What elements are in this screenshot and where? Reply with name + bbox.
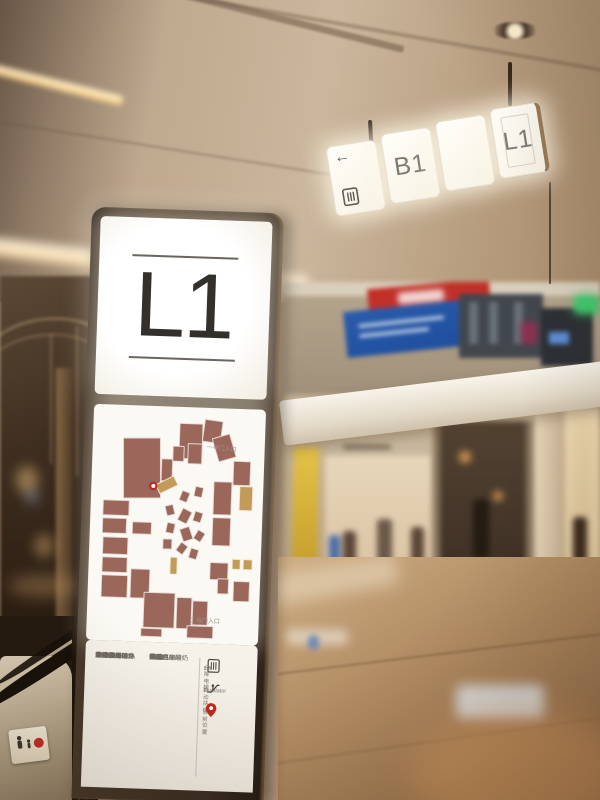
map-unit-block	[102, 556, 128, 573]
store-name: VERO MODA	[95, 652, 135, 661]
sign-panel-direction: ←	[325, 139, 386, 217]
railing-curve	[0, 327, 98, 422]
map-unit-block	[188, 547, 200, 561]
map-unit-block	[242, 559, 252, 571]
map-unit-block	[233, 461, 251, 486]
gate-label-bottom: 二号门入口	[190, 615, 220, 625]
railing-post	[76, 326, 78, 476]
floor-reflection	[278, 557, 400, 606]
storefront-window	[541, 308, 593, 366]
map-unit-block	[179, 526, 194, 542]
green-neon-sign	[575, 296, 598, 313]
map-unit-block	[216, 578, 229, 594]
escalator-safety-sticker	[8, 726, 50, 764]
map-unit-block	[102, 500, 129, 517]
yellow-banner	[292, 447, 319, 565]
map-unit-block	[164, 503, 176, 516]
legend-item-location: 当前位置	[202, 703, 249, 719]
floor-reflection	[308, 635, 319, 650]
map-unit-block	[162, 538, 172, 550]
map-unit-block	[213, 481, 233, 516]
map-unit-block	[193, 486, 205, 499]
map-unit-block	[192, 511, 204, 525]
map-unit-block	[186, 625, 213, 640]
map-unit-block	[177, 507, 193, 524]
light-blob	[8, 576, 78, 596]
legend-item-escalator: Escalator 自动扶梯	[203, 682, 250, 696]
sign-panel-b1: B1	[380, 126, 441, 204]
map-unit-block	[131, 521, 152, 535]
legend-item-lift: Lift 升降电梯	[204, 658, 251, 675]
map-unit-block	[102, 536, 128, 555]
map-unit-block	[101, 518, 127, 535]
warm-lamp	[493, 491, 503, 501]
map-unit-block	[178, 490, 191, 504]
escalator-icon	[206, 682, 220, 694]
floor-warm-glow	[410, 710, 600, 800]
ceiling-light-strip	[0, 64, 124, 106]
map-unit-block	[212, 517, 232, 547]
map-unit-block	[172, 445, 185, 461]
shopper-silhouette	[473, 499, 489, 559]
directory-column-1: L101太平洋咖啡L103世为国际健身L107PATAVINITYL108NOM…	[91, 652, 149, 785]
ceiling-seam	[0, 120, 378, 184]
map-unit-block	[101, 574, 129, 598]
map-unit-block	[165, 521, 177, 534]
blank-panel-label	[435, 115, 494, 191]
lift-icon	[207, 658, 221, 673]
map-legend: Lift 升降电梯 Escalator 自动扶梯	[200, 656, 252, 789]
warm-lamp	[459, 451, 471, 463]
floor-label-b1: B1	[381, 127, 440, 203]
left-arrow-icon: ←	[333, 147, 352, 167]
directory-row: L127VERO MODA	[96, 652, 150, 654]
blue-banner-sign	[343, 300, 465, 358]
sign-panel-l1: L1	[489, 101, 550, 179]
light-blob	[34, 534, 54, 558]
prohibition-sign	[32, 736, 45, 749]
store-display-blob	[521, 322, 537, 344]
map-unit-block	[231, 558, 241, 570]
floor-label-l1: L1	[490, 102, 546, 177]
floor-map-lightbox: 一号门入口 二号门入口	[86, 404, 266, 646]
sign-panel-blank	[434, 113, 495, 191]
lift-icon	[341, 185, 361, 207]
totem-floor-label: L1	[133, 258, 234, 353]
recessed-downlight	[492, 22, 538, 39]
map-unit-block	[170, 556, 179, 574]
railing-post	[50, 334, 52, 464]
store-name: 周黑	[149, 654, 162, 663]
map-unit-block	[232, 581, 250, 602]
map-unit-block	[174, 541, 188, 556]
sign-hanger-rod	[508, 62, 512, 106]
directory-panel: L101太平洋咖啡L103世为国际健身L107PATAVINITYL108NOM…	[81, 640, 258, 793]
map-unit-block	[188, 444, 203, 465]
light-blob	[26, 490, 38, 504]
glossy-floor	[278, 557, 600, 800]
map-unit-block	[238, 486, 253, 511]
map-unit-block	[142, 592, 175, 629]
ceiling-rod	[549, 182, 551, 284]
mall-photo-scene: ← B1 L1 L1 一号门入口	[0, 0, 600, 800]
directory-column-2: L131INXLL135YO!L136UNAL137loumolanL139OM…	[145, 654, 198, 787]
store-sign-text	[343, 445, 391, 449]
location-pin-icon	[205, 703, 216, 717]
totem-directory-sign: L1 一号门入口 二号门入口 L101太平洋咖啡L103世为国际健身L107PA…	[71, 207, 284, 800]
floor-lightbox: L1	[95, 216, 273, 400]
map-unit-block	[140, 628, 162, 638]
map-unit-block	[192, 528, 206, 543]
